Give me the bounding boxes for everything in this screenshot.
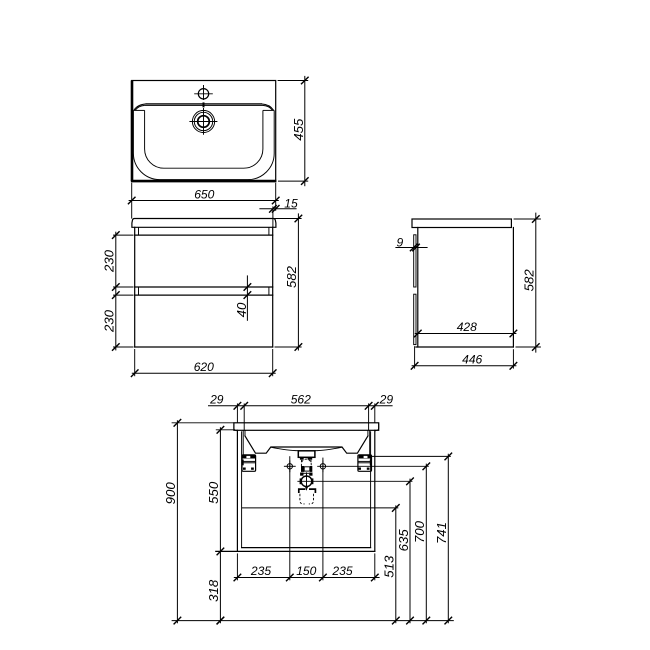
svg-text:9: 9 <box>397 235 404 249</box>
svg-text:235: 235 <box>331 564 352 578</box>
svg-text:562: 562 <box>291 392 311 406</box>
svg-text:582: 582 <box>522 269 537 292</box>
svg-text:700: 700 <box>412 520 427 543</box>
svg-text:620: 620 <box>194 360 214 374</box>
svg-text:635: 635 <box>396 529 411 552</box>
svg-text:741: 741 <box>434 522 449 544</box>
svg-text:29: 29 <box>379 392 394 406</box>
svg-text:40: 40 <box>234 302 249 317</box>
svg-text:428: 428 <box>457 320 477 334</box>
svg-text:550: 550 <box>206 481 221 504</box>
svg-text:318: 318 <box>206 579 221 602</box>
svg-text:235: 235 <box>250 564 271 578</box>
svg-text:230: 230 <box>102 309 117 333</box>
svg-text:230: 230 <box>102 249 117 273</box>
svg-text:650: 650 <box>194 187 214 201</box>
svg-text:15: 15 <box>284 196 298 210</box>
svg-text:455: 455 <box>291 118 306 141</box>
svg-text:29: 29 <box>209 392 224 406</box>
svg-text:446: 446 <box>462 352 482 366</box>
svg-text:900: 900 <box>163 482 178 505</box>
svg-text:513: 513 <box>382 555 397 578</box>
svg-text:582: 582 <box>284 265 299 288</box>
svg-text:150: 150 <box>296 564 316 578</box>
